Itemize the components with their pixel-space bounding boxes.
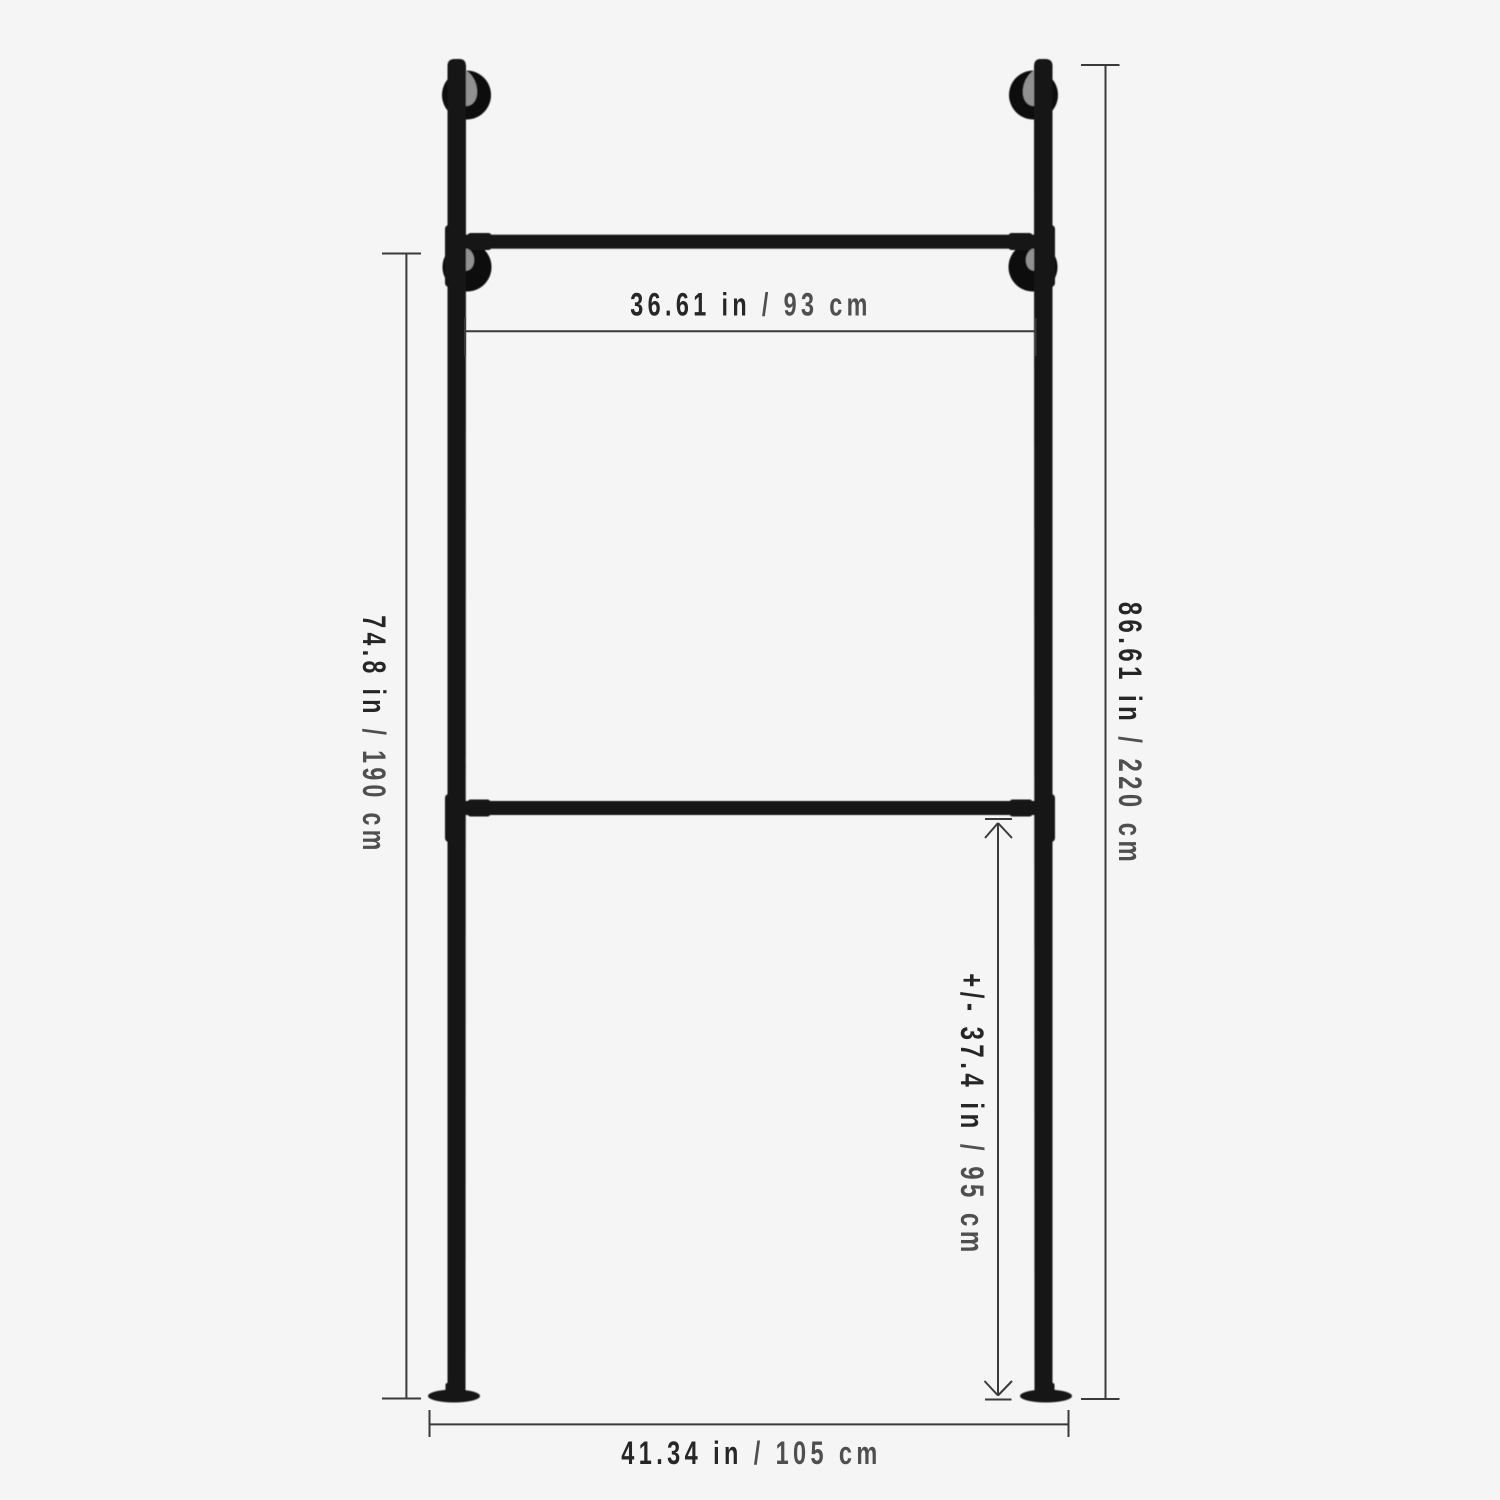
svg-text:+/- 37.4 in / 95 cm: +/- 37.4 in / 95 cm [954,973,990,1256]
svg-text:41.34 in / 105 cm: 41.34 in / 105 cm [621,1436,881,1471]
svg-text:36.61 in / 93 cm: 36.61 in / 93 cm [630,287,871,322]
svg-text:74.8 in / 190 cm: 74.8 in / 190 cm [356,615,392,854]
svg-text:86.61 in / 220 cm: 86.61 in / 220 cm [1112,602,1148,866]
